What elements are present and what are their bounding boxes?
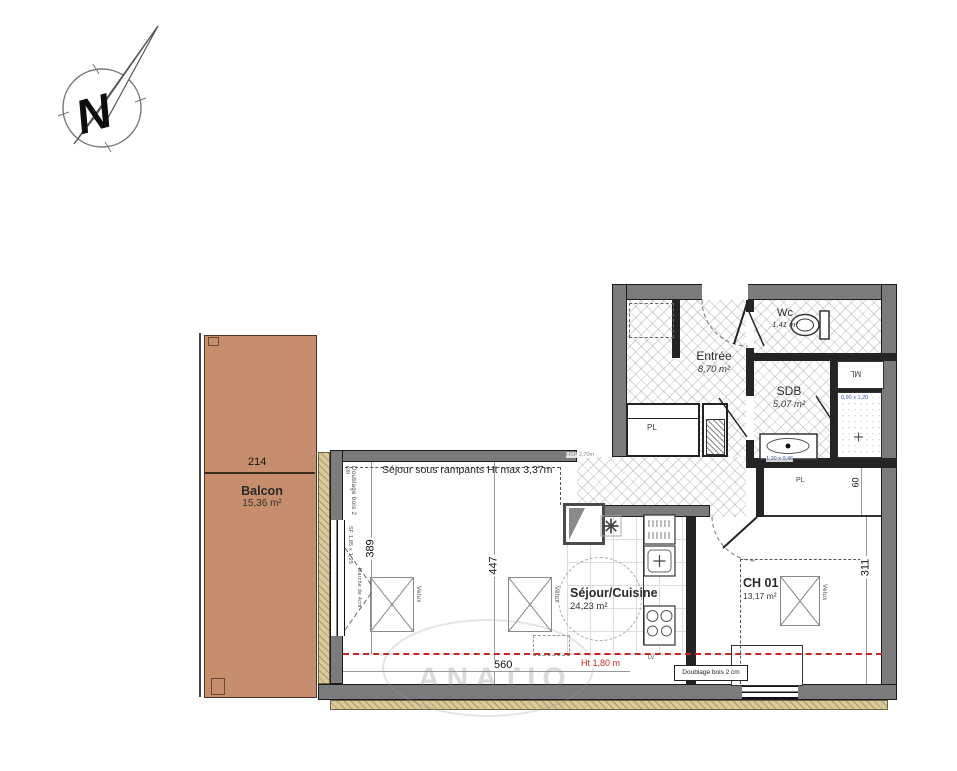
dim-balcony-width: 214 — [246, 457, 268, 468]
dim-389: 389 — [366, 537, 377, 559]
insulation-strip-south — [330, 700, 888, 710]
wc-area: 1,41 m² — [763, 320, 807, 329]
partition-sejour-ch01 — [686, 517, 696, 684]
entree-label: Entrée — [682, 349, 746, 363]
sejour-area: 24,23 m² — [570, 601, 608, 612]
kitchen-counter-edge — [643, 515, 644, 645]
wall-top — [612, 284, 897, 300]
velux-window — [370, 577, 414, 632]
washing-machine-label: ML — [850, 368, 861, 377]
insulation-strip-west — [318, 452, 330, 684]
entree-dashed-zone — [629, 303, 674, 338]
kitchen-roof-window — [563, 503, 605, 545]
ch01-closet-front-line — [764, 515, 881, 517]
entree-closet-label: PL — [647, 424, 657, 433]
sdb-area: 5,07 m² — [764, 399, 814, 410]
velux-label: Velux — [821, 584, 827, 601]
balcony-deck — [204, 335, 317, 698]
partition-sdb-west-b — [746, 440, 754, 458]
velux-window — [780, 576, 820, 626]
partition-sdb-east — [830, 361, 837, 460]
ch01-label: CH 01 — [743, 576, 778, 590]
wall-entree-west — [612, 284, 627, 457]
height-180-line — [343, 653, 882, 655]
ch01-window — [742, 685, 798, 699]
ch01-closet-label: PL — [796, 477, 805, 485]
height-180-label: Ht 1,80 m — [578, 658, 623, 668]
sejour-label: Séjour/Cuisine — [570, 586, 658, 600]
ch01-door — [712, 517, 757, 561]
balcony-area: 15,36 m² — [222, 498, 302, 509]
wall-bottom — [318, 684, 897, 700]
dimline-311 — [866, 517, 867, 684]
balcony-label: Balcon — [222, 484, 302, 498]
partition-wc-west-a — [746, 300, 754, 312]
balcony-post-marker — [208, 337, 219, 346]
entree-area: 8,70 m² — [682, 364, 746, 375]
velux-window — [508, 577, 552, 632]
floor-plan: N 214 Balcon 15,36 m² PL ML 0,9 — [0, 0, 957, 771]
balcony-window-door — [330, 520, 345, 636]
window-size-note: SF 1,85 x 1,25 — [347, 526, 353, 570]
doublage-left-note: Doublage bois 2 cm — [344, 466, 356, 526]
dimline-60 — [861, 468, 862, 515]
step-note: Marche de 4cm — [356, 568, 362, 612]
ch01-dashed-top — [740, 559, 866, 560]
entree-closet — [626, 403, 700, 457]
dim-560: 560 — [492, 660, 514, 671]
balcony-post-marker — [211, 678, 225, 695]
velux-label: Velux — [553, 586, 559, 603]
partition-wc-south — [746, 353, 897, 361]
ceiling-height-note: HSP 2,70m — [566, 452, 594, 458]
shower — [837, 392, 882, 458]
entry-door-opening — [702, 284, 748, 300]
north-compass: N — [40, 18, 180, 158]
velux-label: Velux — [415, 586, 421, 603]
wall-sejour-north — [330, 450, 577, 462]
doublage-right-note: Doublage bois 2 cm — [674, 665, 748, 681]
balcony-divider-line — [204, 472, 315, 474]
balcony-railing-line — [199, 333, 201, 697]
utility-closet-door — [706, 419, 725, 455]
dim-447: 447 — [489, 554, 500, 576]
wall-right — [881, 284, 897, 688]
sink-size-label: 1,20 x 0,46 — [766, 456, 793, 462]
sdb-label: SDB — [764, 384, 814, 398]
shower-size-label: 0,90 x 1,20 — [841, 395, 868, 401]
dim-60: 60 — [852, 475, 861, 489]
dim-311: 311 — [860, 557, 871, 579]
partition-corridor-east — [756, 458, 764, 517]
dishwasher-label: LV — [648, 655, 654, 661]
partition-sdb-west-a — [746, 361, 754, 396]
rampants-note: Séjour sous rampants Ht max 3,37m — [382, 464, 552, 476]
wc-label: Wc — [763, 307, 807, 319]
rampants-dashed-right — [560, 467, 561, 505]
ch01-area: 13,17 m² — [743, 591, 777, 601]
